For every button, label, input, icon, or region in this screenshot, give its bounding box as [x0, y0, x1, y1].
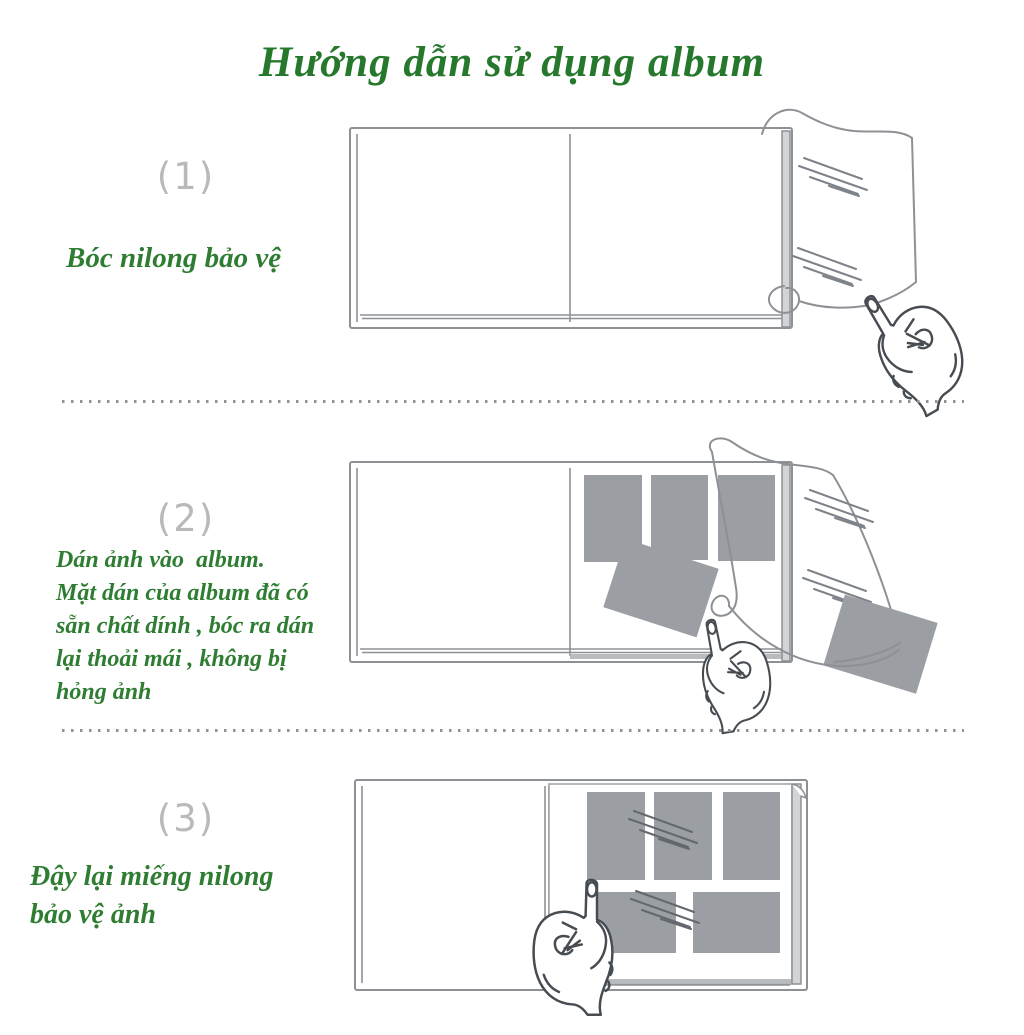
step1-number: (1): [144, 155, 228, 198]
photo-placeholders: [584, 475, 775, 562]
step1-illustration: [338, 104, 968, 404]
step2-caption: Dán ảnh vào album. Mặt dán của album đã …: [56, 544, 314, 709]
film-shine-lines: [793, 158, 867, 286]
step3-caption: Đậy lại miếng nilong bảo vệ ảnh: [30, 858, 273, 934]
loose-photo: [823, 595, 937, 694]
dotted-divider: [62, 400, 964, 403]
step3-illustration: [340, 755, 980, 1035]
instruction-sheet: Hướng dẫn sử dụng album (1) Bóc nilong b…: [0, 0, 1024, 1024]
step3-number: (3): [144, 797, 228, 840]
dotted-divider: [62, 729, 964, 732]
hand-icon: [851, 269, 984, 422]
album-open: [350, 128, 792, 328]
step1-caption: Bóc nilong bảo vệ: [66, 242, 281, 275]
page-title: Hướng dẫn sử dụng album: [0, 38, 1024, 87]
film-shine-lines: [803, 490, 873, 608]
step2-number: (2): [144, 497, 228, 540]
step2-illustration: [338, 438, 968, 738]
